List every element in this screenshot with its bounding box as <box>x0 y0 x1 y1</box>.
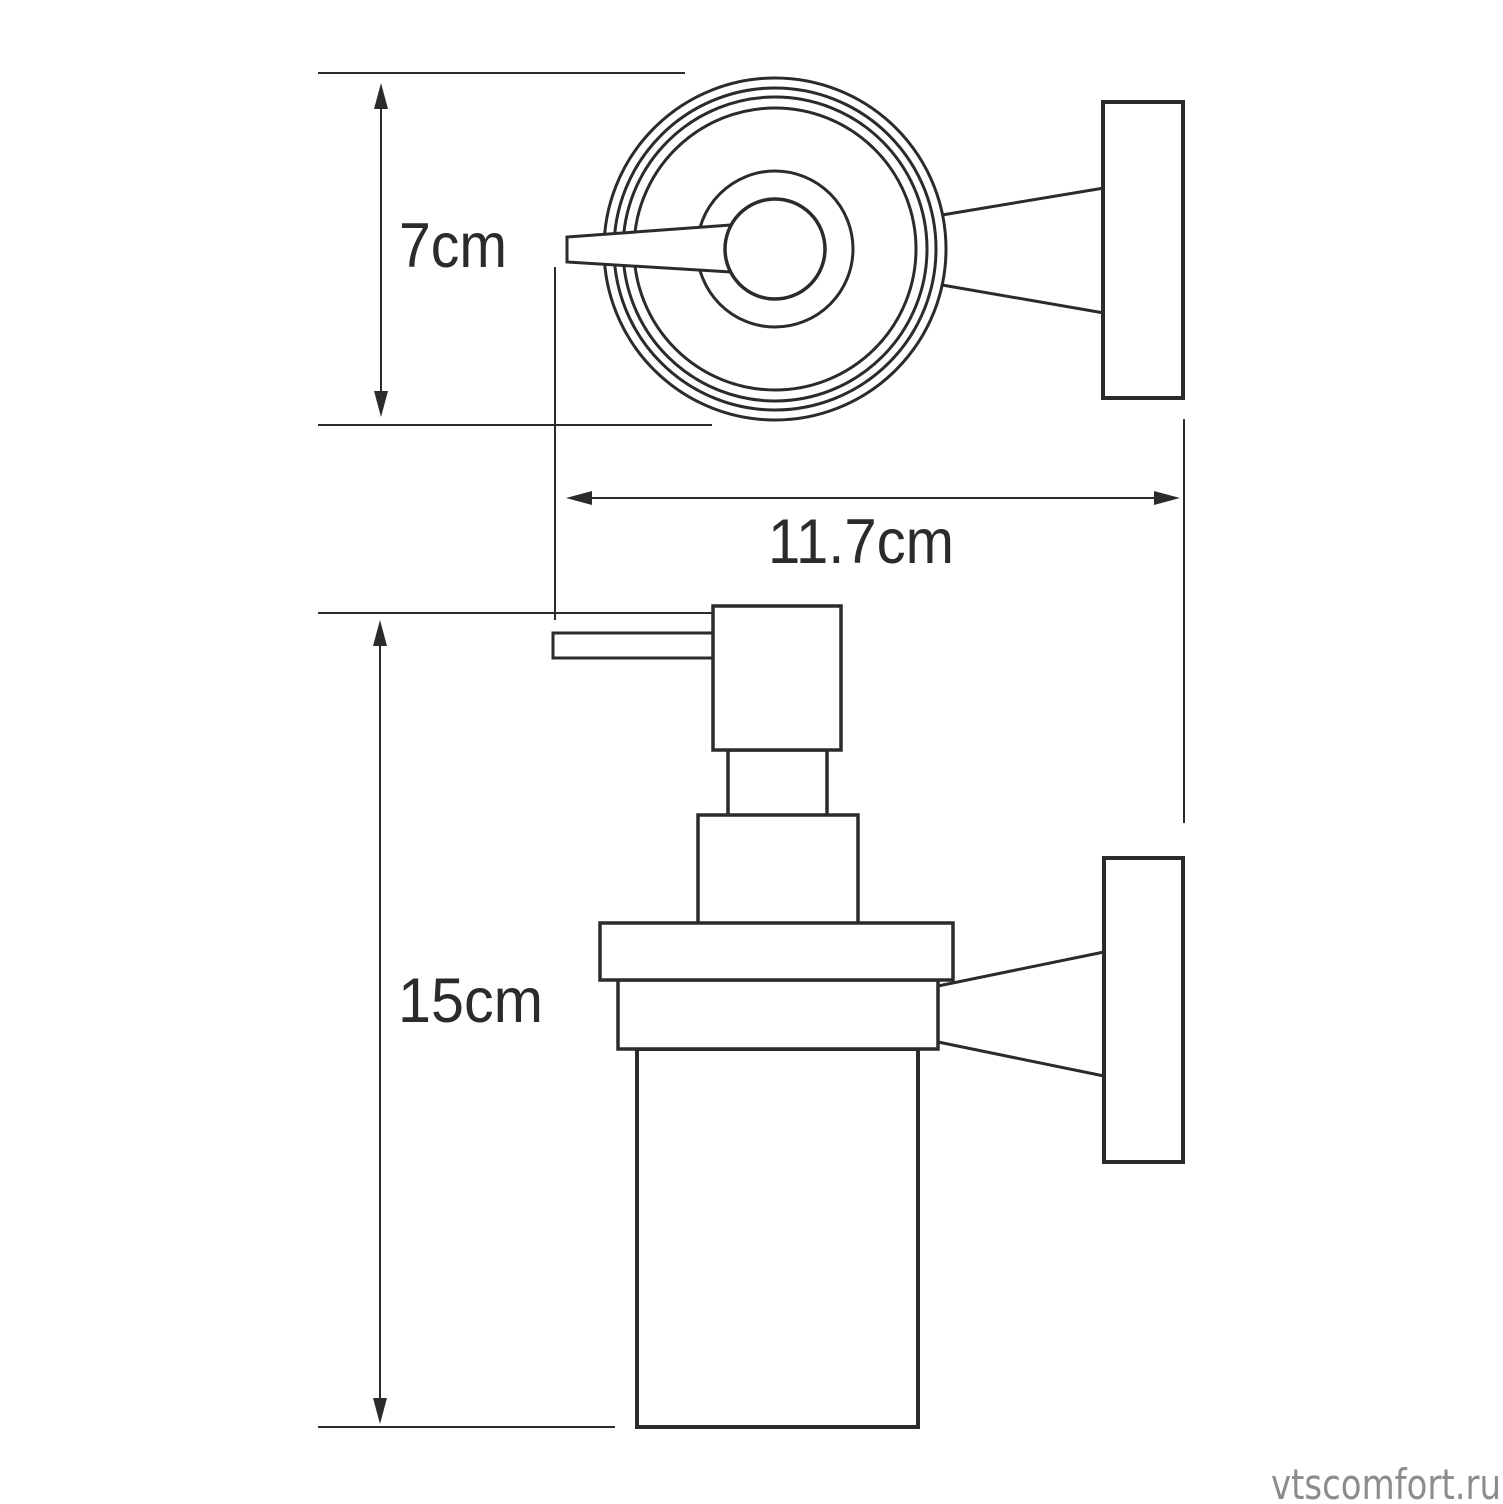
top-view <box>567 78 1183 420</box>
watermark: vtscomfort.ru <box>1271 1460 1501 1504</box>
pump-head <box>713 606 841 750</box>
technical-drawing-page: 7cm 11.7cm 15cm vtscomfort.ru <box>0 0 1503 1504</box>
holder-ring-body <box>618 980 938 1049</box>
diameter-label: 7cm <box>399 211 507 281</box>
depth-arrow-right <box>1154 491 1180 505</box>
diameter-arrow-down <box>374 391 388 417</box>
height-arrow-down <box>373 1398 387 1424</box>
wall-plate-side-view <box>1104 858 1183 1162</box>
depth-label: 11.7cm <box>768 507 954 577</box>
wall-plate-top-view <box>1103 102 1183 398</box>
wall-cone-side-view-body <box>938 952 1104 1076</box>
depth-arrow-left <box>566 491 592 505</box>
wall-cone-top-view <box>942 188 1104 313</box>
spout-side-view <box>553 633 713 658</box>
diameter-arrow-up <box>374 83 388 109</box>
wall-cone-top-view-body <box>942 188 1104 313</box>
side-view <box>553 606 1183 1427</box>
pump-head-circle <box>725 199 825 299</box>
bottle <box>637 1049 918 1427</box>
holder-flange <box>600 923 953 980</box>
spout-top-view <box>567 225 731 272</box>
height-label: 15cm <box>398 966 543 1036</box>
height-arrow-up <box>373 620 387 646</box>
wall-cone-side-view <box>938 952 1104 1076</box>
pump-neck <box>728 750 827 817</box>
soap-dispenser-dimension-drawing: 7cm 11.7cm 15cm vtscomfort.ru <box>0 0 1503 1504</box>
pump-collar <box>698 815 858 925</box>
